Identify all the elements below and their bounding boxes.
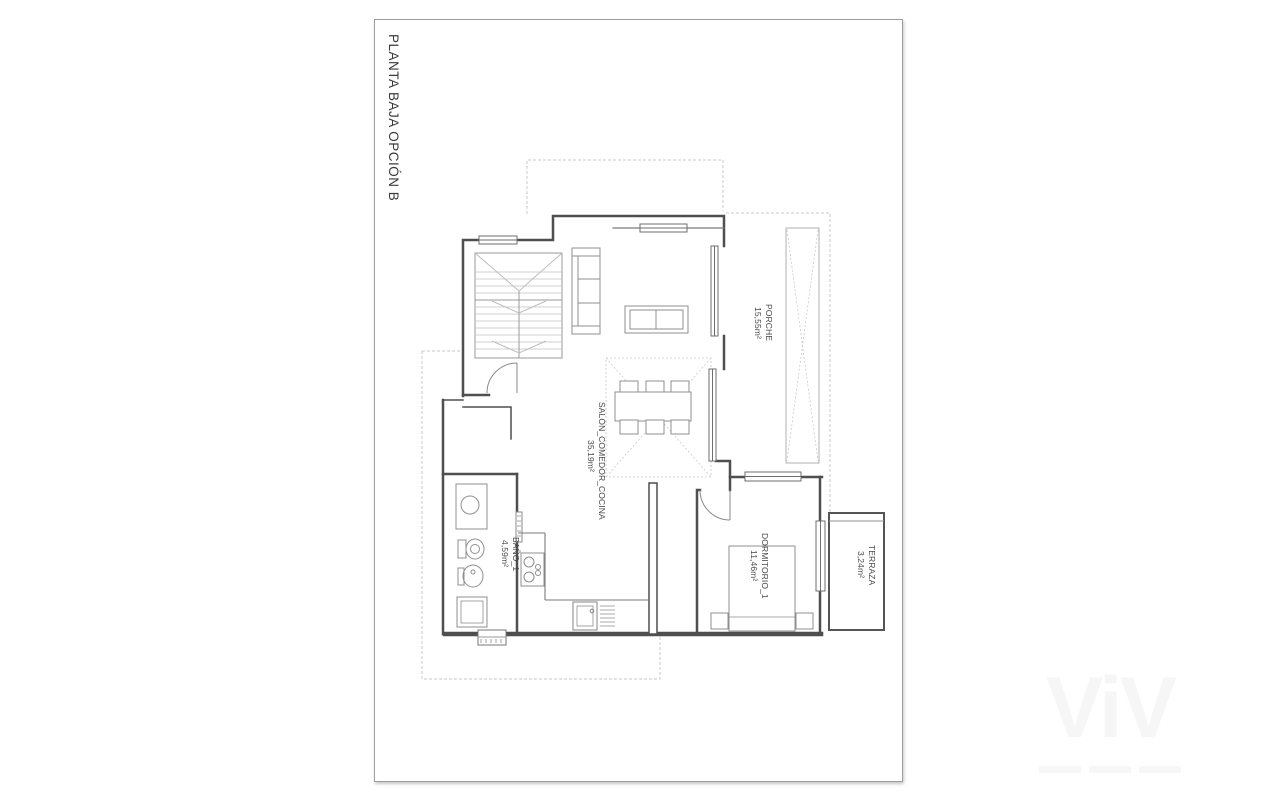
room-name: SALÓN_COMEDOR_COCINA [596,402,607,510]
hall-door [487,363,517,393]
staircase [475,253,562,358]
nightstand-left [711,613,728,629]
kitchen-divider-wall [649,483,657,634]
room-label-dormitorio: DORMITORIO_1 11,46m² [748,531,770,601]
room-area: 4,59m² [499,531,510,577]
porch-column-cross [787,230,818,461]
page-canvas: PLANTA BAJA OPCIÓN B [0,0,1280,800]
dining-table [615,392,691,421]
salon-high-window [640,224,687,232]
room-name: TERRAZA [866,539,877,591]
watermark: ViV [985,668,1235,778]
salon-window-1 [711,246,718,336]
salon-window-2 [709,369,716,461]
room-label-bano: BAÑO_1 4,59m² [499,531,521,577]
dashed-top-extension [527,160,723,214]
dining-chairs-bottom [620,420,689,434]
room-name: BAÑO_1 [510,531,521,577]
nightstand-right [796,613,813,629]
bidet [458,565,483,587]
kitchen-sink [573,602,615,630]
room-area: 11,46m² [748,531,759,601]
entrance-threshold [478,630,506,645]
doors [487,363,730,542]
shower-tray [457,597,487,627]
room-label-terraza: TERRAZA 3,24m² [855,539,877,591]
watermark-bars [985,760,1235,778]
bedroom-window [745,472,801,481]
sofa [572,248,600,334]
bedroom-side-window [816,521,825,591]
hob [521,553,544,586]
room-label-porche: PORCHE 15,55m² [752,295,774,350]
kitchen [518,533,649,630]
stair-window [479,236,517,244]
room-area: 15,55m² [752,295,763,350]
toilet [458,539,484,559]
room-name: DORMITORIO_1 [759,531,770,601]
room-area: 35,19m² [585,402,596,510]
sink-drainer [600,606,615,626]
room-label-salon-comedor-cocina: SALÓN_COMEDOR_COCINA 35,19m² [585,402,607,510]
room-name: PORCHE [763,295,774,350]
coffee-table [625,306,688,333]
watermark-text: ViV [985,668,1235,750]
bathroom [456,484,487,627]
room-area: 3,24m² [855,539,866,591]
bedroom-door [700,490,730,520]
vanity [456,484,487,529]
